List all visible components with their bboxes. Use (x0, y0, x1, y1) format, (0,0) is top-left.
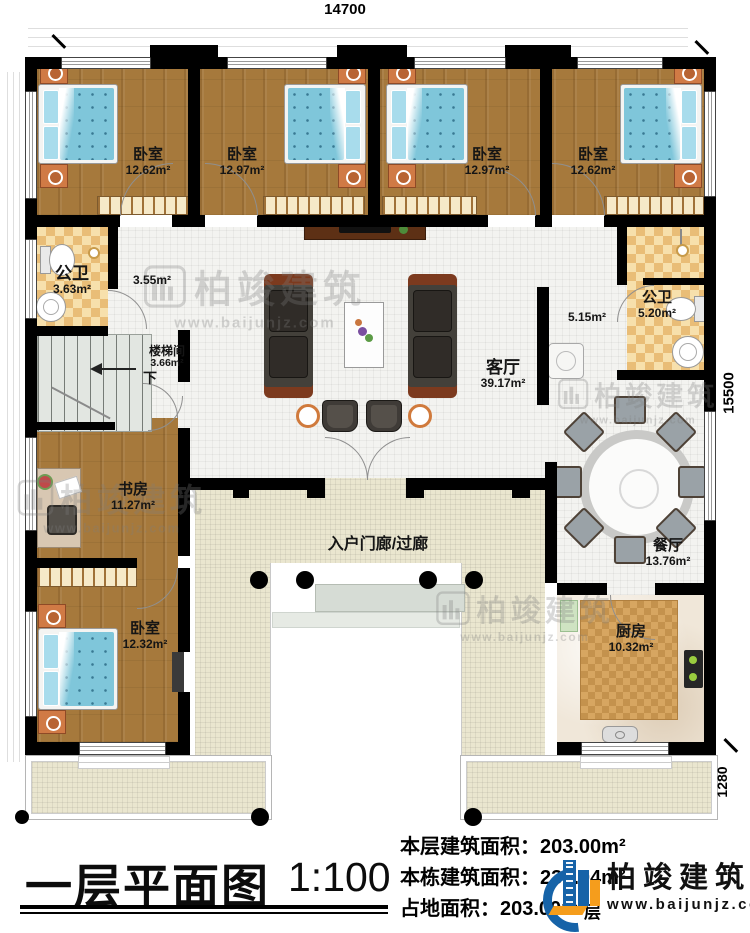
window (26, 240, 36, 318)
wardrobe (382, 196, 477, 215)
wall-segment (368, 69, 380, 215)
wardrobe (604, 196, 704, 215)
sill-line (19, 72, 20, 762)
dimension-bottom-right: 1280 (714, 766, 730, 797)
wall-segment (537, 287, 549, 405)
window-sill (580, 756, 672, 769)
window (80, 743, 165, 754)
window-sill (78, 756, 170, 769)
bed (38, 628, 118, 710)
wall-pier (337, 45, 407, 58)
entry-step-lower (272, 612, 460, 628)
dining-chair (554, 466, 582, 498)
wall-pier (150, 45, 218, 58)
sill-line (28, 37, 688, 38)
sofa (264, 274, 313, 398)
room-label-living: 客厅39.17m² (481, 358, 526, 390)
paper (54, 476, 82, 500)
dimension-tick (695, 40, 709, 54)
wardrobe (37, 565, 137, 587)
column (419, 571, 437, 589)
building-logo-icon (543, 860, 601, 926)
sill-line (28, 28, 688, 29)
column (465, 571, 483, 589)
sill-line (7, 72, 8, 762)
wall-segment (535, 215, 552, 227)
dimension-dot (15, 810, 29, 824)
wardrobe (263, 196, 365, 215)
wall-segment (25, 215, 120, 227)
logo-brand-text: 柏竣建筑 (607, 860, 750, 896)
window (705, 92, 715, 196)
window (26, 92, 36, 198)
side-table (408, 404, 432, 428)
room-label-bath-left: 公卫3.63m² (53, 264, 91, 296)
window (578, 58, 662, 68)
dimension-tick (724, 738, 738, 752)
room-label-kitchen: 厨房10.32m² (609, 624, 654, 654)
wall-segment (617, 227, 627, 285)
wall-segment (37, 326, 108, 336)
area-label-corridor-right: 5.15m² (568, 310, 606, 324)
dining-chair (614, 396, 646, 424)
column (250, 571, 268, 589)
nightstand (338, 164, 366, 188)
stat-floor-area: 本层建筑面积：203.00m² (400, 830, 626, 859)
wall-pier (233, 478, 249, 498)
room-label-dining: 餐厅13.76m² (646, 538, 691, 568)
window (26, 438, 36, 530)
wall-pier (512, 478, 530, 498)
floor-plan-sheet: 柏竣建筑 www.baijunjz.com 柏竣建筑 www.baijunjz.… (0, 0, 750, 933)
dining-chair (678, 466, 706, 498)
wall-segment (557, 583, 607, 595)
nightstand (40, 164, 68, 188)
column (251, 808, 269, 826)
room-label-bedroom1: 卧室12.62m² (126, 147, 171, 177)
column (296, 571, 314, 589)
computer (47, 505, 77, 535)
nightstand (674, 164, 702, 188)
company-logo: 柏竣建筑 www.baijunjz.com (543, 860, 750, 926)
wall-segment (25, 558, 137, 568)
wall-segment (540, 69, 552, 215)
entry-step-upper (315, 584, 465, 612)
room-label-study: 书房11.27m² (111, 482, 155, 512)
room-label-bedroom2: 卧室12.97m² (220, 147, 265, 177)
wall-segment (185, 478, 325, 490)
room-label-stairwell: 楼梯间3.66m² (149, 345, 185, 370)
wall-pier (505, 45, 571, 58)
window (415, 58, 505, 68)
window (26, 612, 36, 716)
wall-segment (643, 278, 704, 285)
wall-segment (37, 422, 115, 430)
title-underline-thin (20, 912, 388, 914)
dining-chair (614, 536, 646, 564)
stove (684, 650, 703, 688)
area-label-corridor-left: 3.55m² (133, 273, 171, 287)
window (582, 743, 668, 754)
window (62, 58, 150, 68)
window (705, 412, 715, 520)
wall-segment (172, 215, 205, 227)
wall-segment (188, 69, 200, 215)
bed (620, 84, 702, 164)
wall-segment (655, 583, 704, 595)
light-fixture (676, 244, 689, 257)
room-label-bedroom4: 卧室12.62m² (571, 147, 616, 177)
nightstand (388, 164, 416, 188)
wall-pier (307, 478, 325, 498)
bed (38, 84, 118, 164)
bed (284, 84, 366, 164)
sink (672, 336, 704, 368)
room-label-bath-right: 公卫5.20m² (638, 290, 676, 320)
title-underline (20, 905, 388, 909)
wall-segment (604, 215, 716, 227)
side-table (296, 404, 320, 428)
wall-segment (257, 215, 488, 227)
plant (39, 476, 51, 488)
sofa (408, 274, 457, 398)
light-fixture (88, 247, 100, 259)
wall-segment (108, 227, 118, 289)
room-label-bedroom3: 卧室12.97m² (465, 147, 510, 177)
dimension-top: 14700 (324, 1, 366, 18)
staircase (37, 334, 152, 432)
window (228, 58, 326, 68)
wall-segment (545, 462, 557, 583)
coffee-table (344, 302, 384, 368)
wall-segment (408, 478, 557, 490)
stair-arrow-line (100, 368, 136, 370)
wall-segment (178, 428, 190, 556)
sink (36, 292, 66, 322)
column (464, 808, 482, 826)
logo-site-text: www.baijunjz.com (607, 896, 750, 913)
wall-pier (406, 478, 424, 498)
door-leaf (172, 652, 184, 692)
room-label-bedroom5: 卧室12.32m² (123, 621, 168, 651)
armchair (322, 400, 358, 432)
bed (386, 84, 468, 164)
kitchen-mat (560, 600, 578, 632)
wall-segment (178, 568, 190, 652)
stairs-down-label: 下 (143, 368, 157, 388)
armchair (366, 400, 402, 432)
dimension-right: 15500 (721, 372, 738, 414)
nightstand (38, 710, 66, 734)
wall-segment (617, 370, 704, 380)
nightstand (38, 604, 66, 628)
sheet-scale: 1:100 (288, 854, 391, 901)
stair-arrow (90, 363, 102, 375)
sill-line (13, 72, 14, 762)
porch-label: 入户门廊/过廊 (328, 536, 428, 554)
kitchen-sink (602, 726, 638, 743)
water-heater (548, 343, 584, 379)
